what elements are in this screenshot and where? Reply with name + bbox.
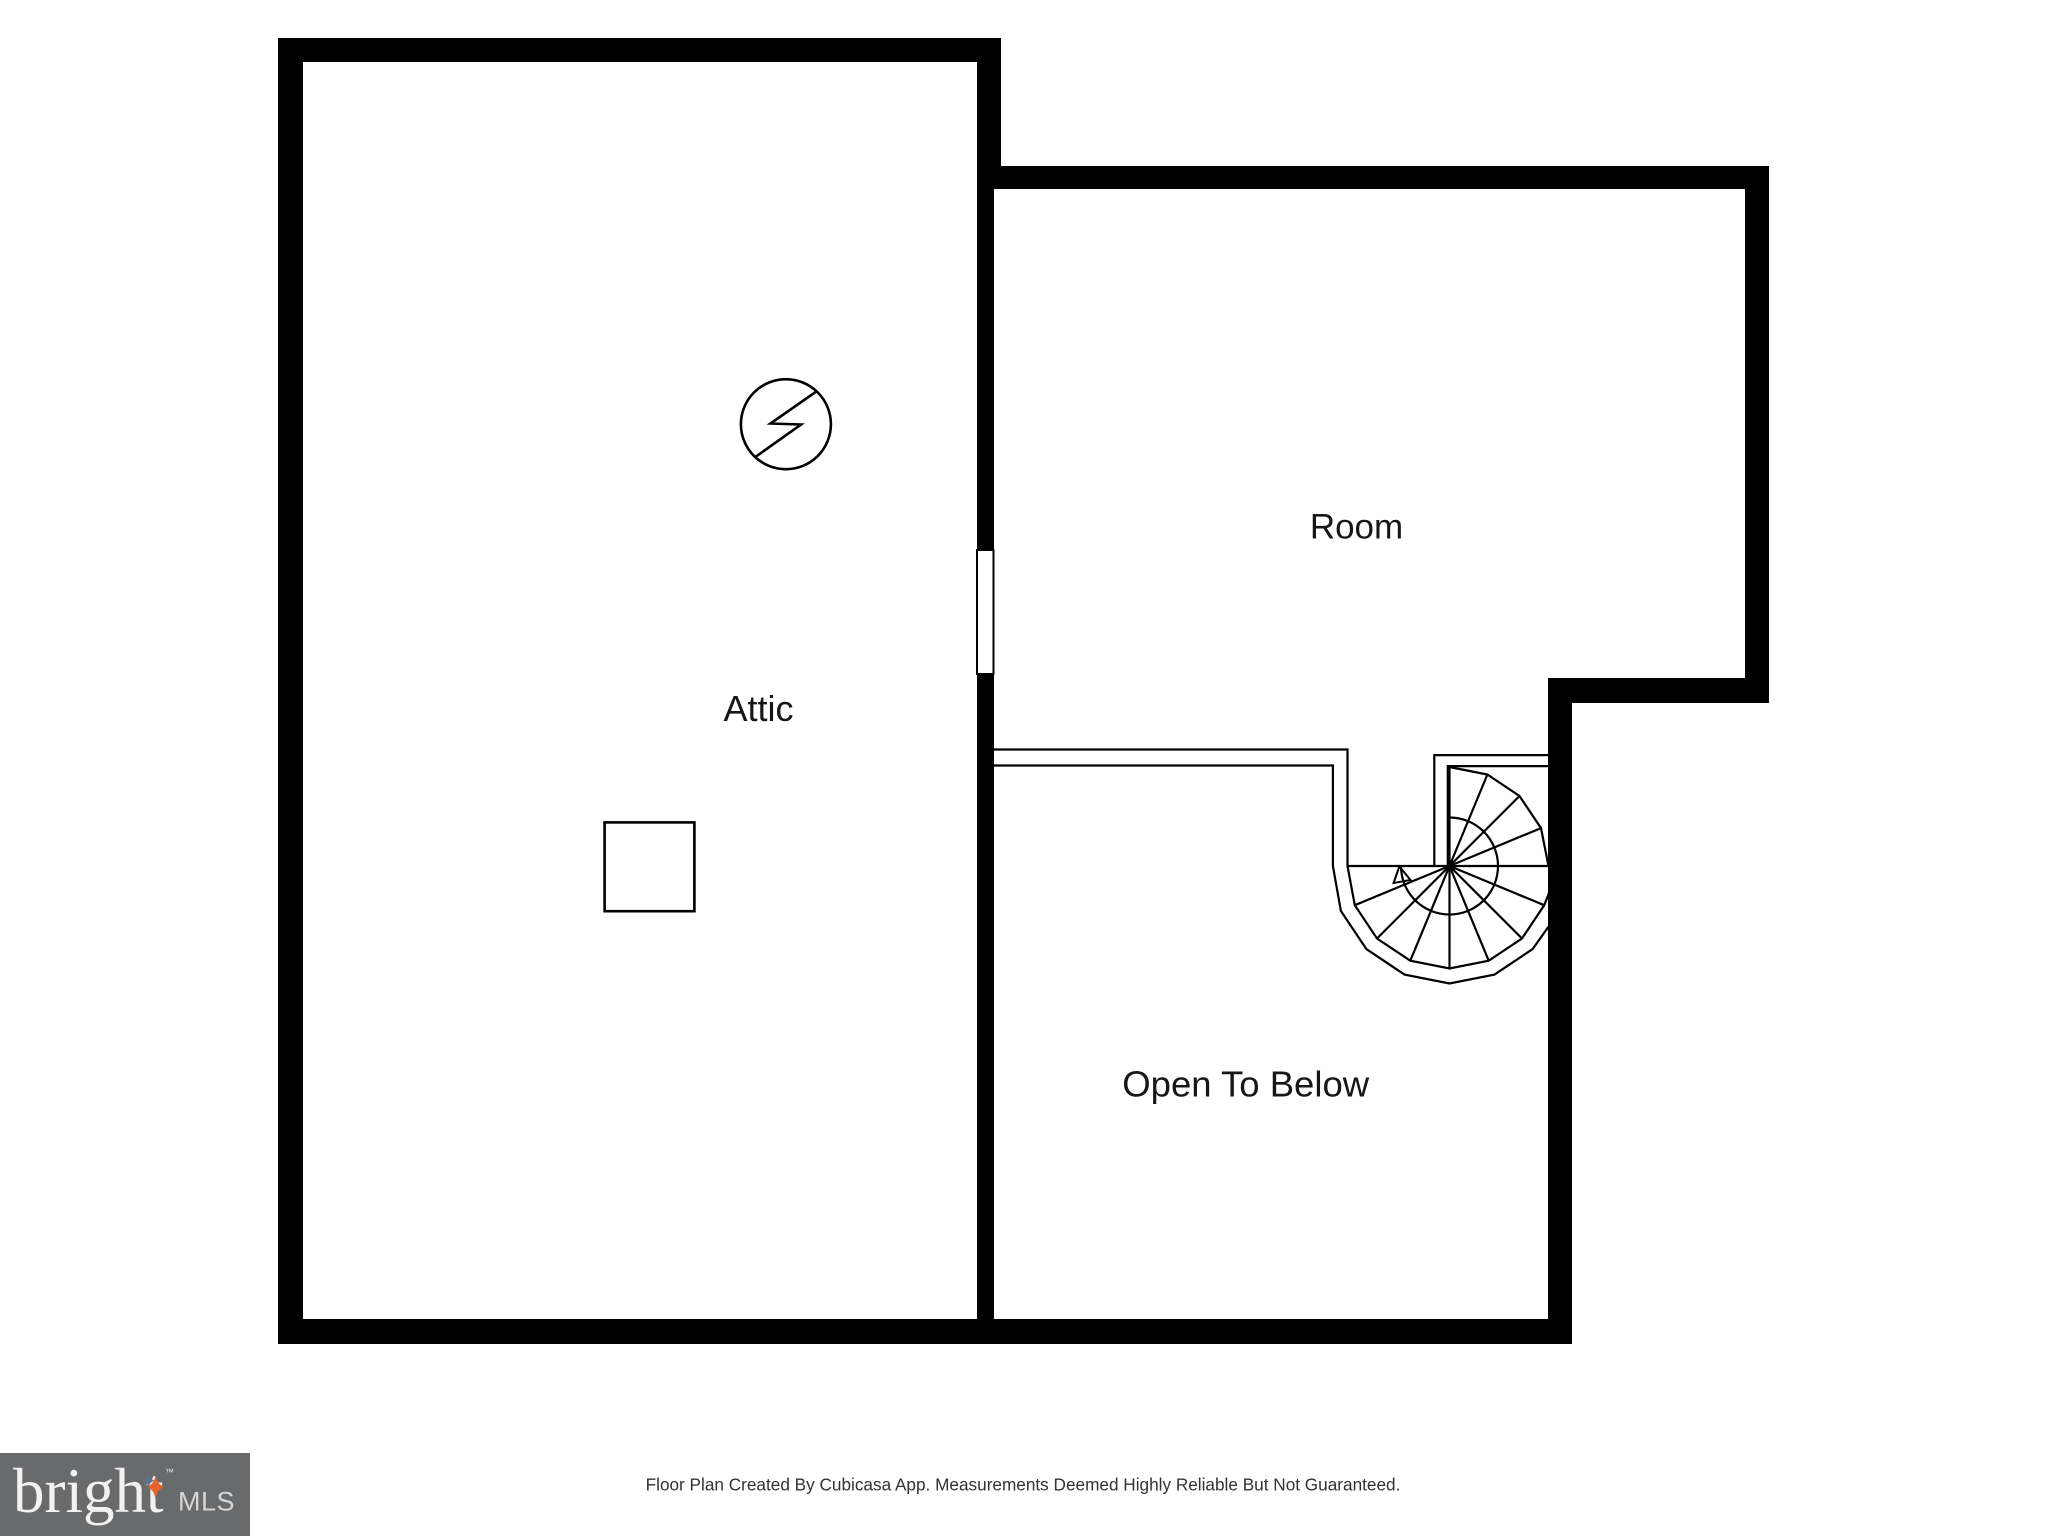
svg-text:Floor Plan Created By Cubicasa: Floor Plan Created By Cubicasa App. Meas… (646, 1475, 1401, 1495)
svg-text:Room: Room (1310, 508, 1403, 547)
svg-text:MLS: MLS (178, 1487, 235, 1517)
svg-text:Attic: Attic (723, 688, 793, 729)
svg-text:Open To Below: Open To Below (1122, 1064, 1370, 1105)
svg-text:bright: bright (13, 1456, 164, 1526)
svg-text:™: ™ (165, 1467, 174, 1477)
